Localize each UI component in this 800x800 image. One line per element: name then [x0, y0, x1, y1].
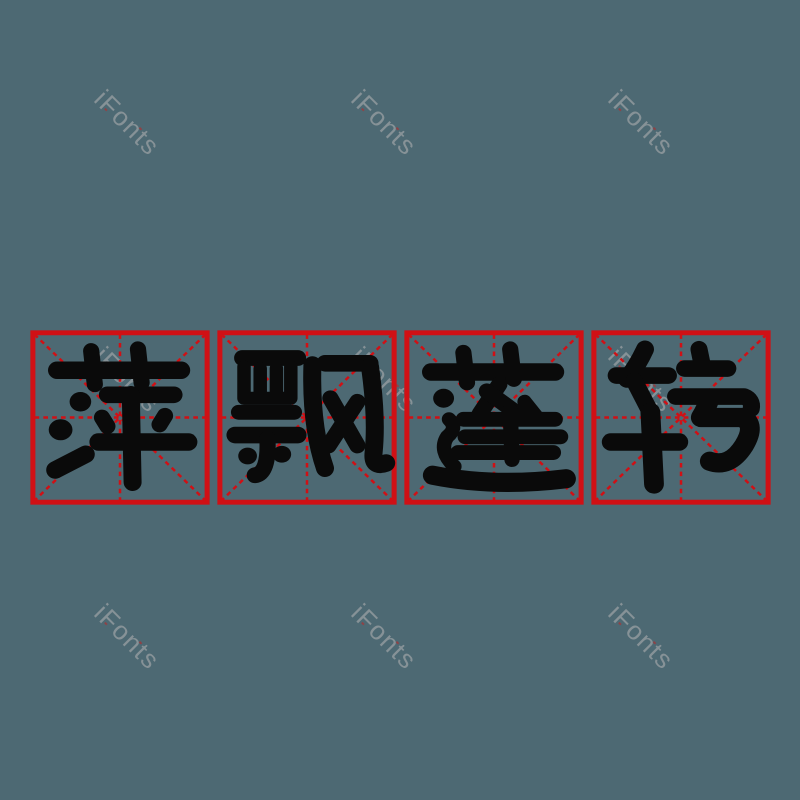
watermark-text: iFonts — [602, 598, 680, 676]
hanzi-glyph-peng — [404, 330, 584, 505]
hanzi-glyph-ping — [30, 330, 210, 505]
watermark-text: iFonts — [345, 598, 423, 676]
watermark-text: iFonts — [88, 84, 166, 162]
font-specimen-image: iFonts iFonts iFonts iFonts iFonts iFont… — [0, 0, 800, 800]
watermark-text: iFonts — [602, 84, 680, 162]
watermark-text: iFonts — [88, 598, 166, 676]
character-cell-piao: 飘 — [217, 330, 397, 505]
character-cell-peng: 蓬 — [404, 330, 584, 505]
hanzi-glyph-piao — [217, 330, 397, 505]
character-cell-ping: 萍 — [30, 330, 210, 505]
watermark-text: iFonts — [345, 84, 423, 162]
hanzi-glyph-zhuan — [591, 330, 771, 505]
character-cell-zhuan: 转 — [591, 330, 771, 505]
